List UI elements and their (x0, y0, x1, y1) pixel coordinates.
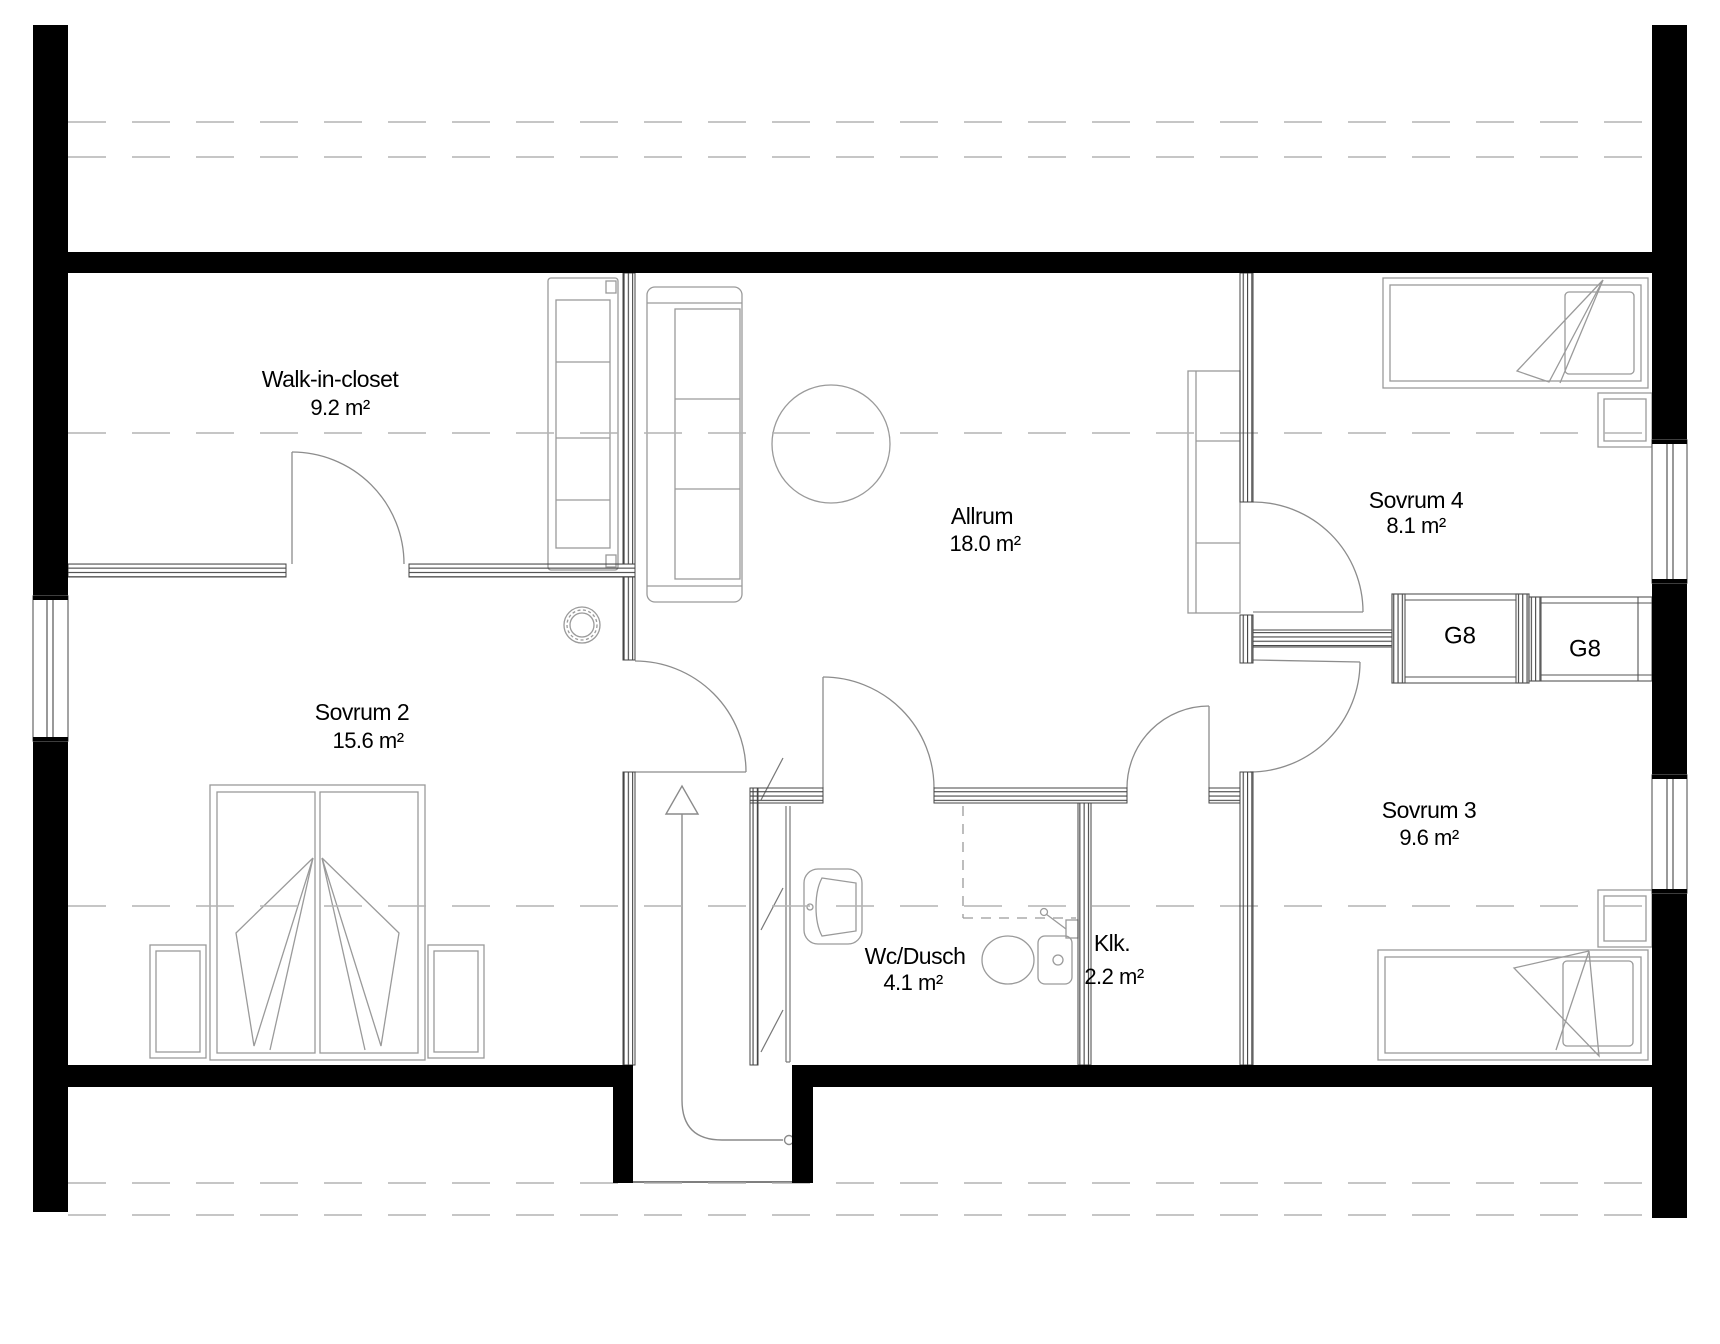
area-walk-in-closet: 9.2 m² (310, 395, 370, 420)
staircase (633, 786, 794, 1182)
wic-wardrobe-cabinet (548, 278, 618, 570)
wall-stair-step-left (613, 1065, 633, 1183)
toilet (982, 936, 1072, 984)
area-wc-dusch: 4.1 m² (883, 970, 943, 995)
door-walk-in-closet (292, 452, 404, 564)
wall-hall-wc (750, 788, 823, 803)
stool (564, 607, 600, 643)
shower-mixer (1041, 909, 1079, 939)
single-bed-sovrum3 (1378, 950, 1648, 1060)
single-bed-sovrum4 (1383, 278, 1648, 388)
wall-right-upper (1652, 25, 1687, 440)
area-sovrum2: 15.6 m² (332, 728, 403, 753)
wardrobe-g8-2-label: G8 (1569, 635, 1601, 662)
nightstand-right (428, 945, 484, 1058)
stair-up-arrow (666, 786, 698, 814)
wall-klk-sovrum3 (1240, 772, 1253, 1065)
door-sovrum3 (1250, 660, 1360, 772)
window-right-sovrum4 (1652, 440, 1687, 583)
label-wc-dusch: Wc/Dusch (865, 943, 966, 969)
stair-handrail (682, 814, 783, 1140)
wall-wc-klk (1078, 803, 1091, 1065)
label-walk-in-closet: Walk-in-closet (262, 366, 400, 392)
wall-sovrum2-stair (623, 772, 635, 1065)
allrum-shelf-cabinet (1188, 371, 1240, 613)
wardrobe-units: G8 G8 (1392, 594, 1652, 683)
round-table (772, 385, 890, 503)
wall-allrum-sovrum4 (1240, 273, 1253, 502)
wall-top (68, 252, 1652, 273)
wall-right-middle (1652, 583, 1687, 775)
nightstand-left (150, 945, 206, 1058)
label-allrum: Allrum (951, 503, 1013, 529)
door-sovrum2 (635, 661, 746, 772)
window-right-sovrum3 (1652, 775, 1687, 893)
wall-wic-sovrum2-right (409, 564, 635, 577)
wardrobe-g8-1-label: G8 (1444, 622, 1476, 649)
floor-plan: G8 G8 (0, 0, 1720, 1344)
side-table-sovrum4 (1598, 393, 1652, 447)
wall-stair-wc (750, 788, 758, 1065)
label-sovrum2: Sovrum 2 (315, 699, 409, 725)
door-wc-dusch (823, 677, 934, 788)
wall-right-lower (1652, 893, 1687, 1218)
door-klk (1127, 706, 1209, 788)
area-sovrum3: 9.6 m² (1399, 825, 1459, 850)
wall-klk-corner (1209, 788, 1240, 803)
shower-zone-dashes (963, 806, 1076, 918)
wall-wic-allrum (623, 273, 635, 564)
side-table-sovrum3 (1598, 890, 1652, 947)
double-bed (210, 785, 425, 1060)
wall-wc-klk-north (934, 788, 1127, 803)
wall-left-upper (33, 25, 68, 596)
window-left-sovrum2 (33, 596, 68, 741)
wall-hall-sovrum34 (1253, 630, 1392, 647)
door-sovrum4 (1253, 502, 1363, 612)
wall-bottom-right (792, 1065, 1654, 1087)
room-labels: Walk-in-closet 9.2 m² Sovrum 2 15.6 m² A… (262, 366, 1477, 995)
wall-bottom-left (63, 1065, 633, 1087)
wall-post-sovrum4 (1240, 615, 1253, 663)
wall-wic-sovrum2-left (68, 564, 286, 577)
label-sovrum3: Sovrum 3 (1382, 797, 1476, 823)
sofa (647, 287, 742, 602)
shower-glass-wall (761, 758, 790, 1062)
label-klk: Klk. (1094, 930, 1130, 956)
area-allrum: 18.0 m² (949, 531, 1020, 556)
wall-sovrum2-hall-upper (623, 577, 635, 660)
label-sovrum4: Sovrum 4 (1369, 487, 1464, 513)
wall-left-lower (33, 741, 68, 1212)
floor-plan-drawing: G8 G8 (0, 0, 1720, 1344)
area-klk: 2.2 m² (1084, 964, 1144, 989)
area-sovrum4: 8.1 m² (1386, 513, 1446, 538)
